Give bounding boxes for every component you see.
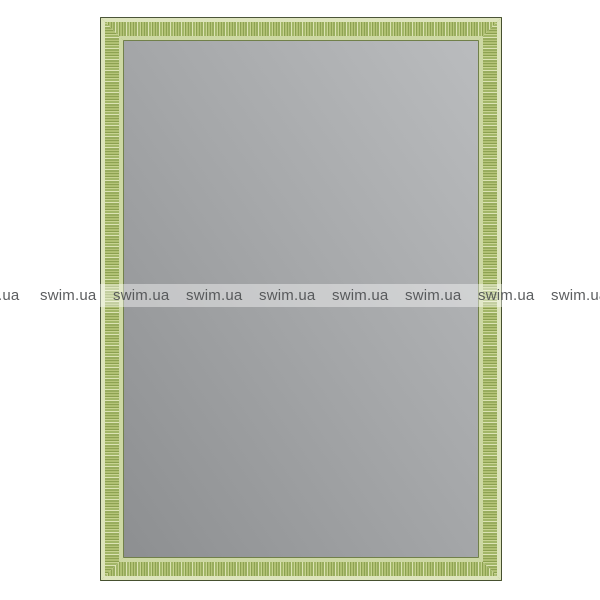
frame-side-top	[100, 17, 502, 41]
watermark-text: swim.ua	[551, 284, 600, 307]
watermark-text: swim.ua	[113, 284, 169, 307]
product-photo: swim.ua swim.ua swim.ua swim.ua swim.ua …	[0, 0, 600, 600]
watermark-text: swim.ua	[186, 284, 242, 307]
watermark-text: swim.ua	[40, 284, 96, 307]
watermark-text: swim.ua	[405, 284, 461, 307]
frame-side-bottom	[100, 557, 502, 581]
watermark-text: swim.ua	[0, 284, 19, 307]
watermark-text: swim.ua	[332, 284, 388, 307]
watermark-text: swim.ua	[259, 284, 315, 307]
watermark-band: swim.ua swim.ua swim.ua swim.ua swim.ua …	[0, 284, 600, 307]
watermark-text: swim.ua	[478, 284, 534, 307]
